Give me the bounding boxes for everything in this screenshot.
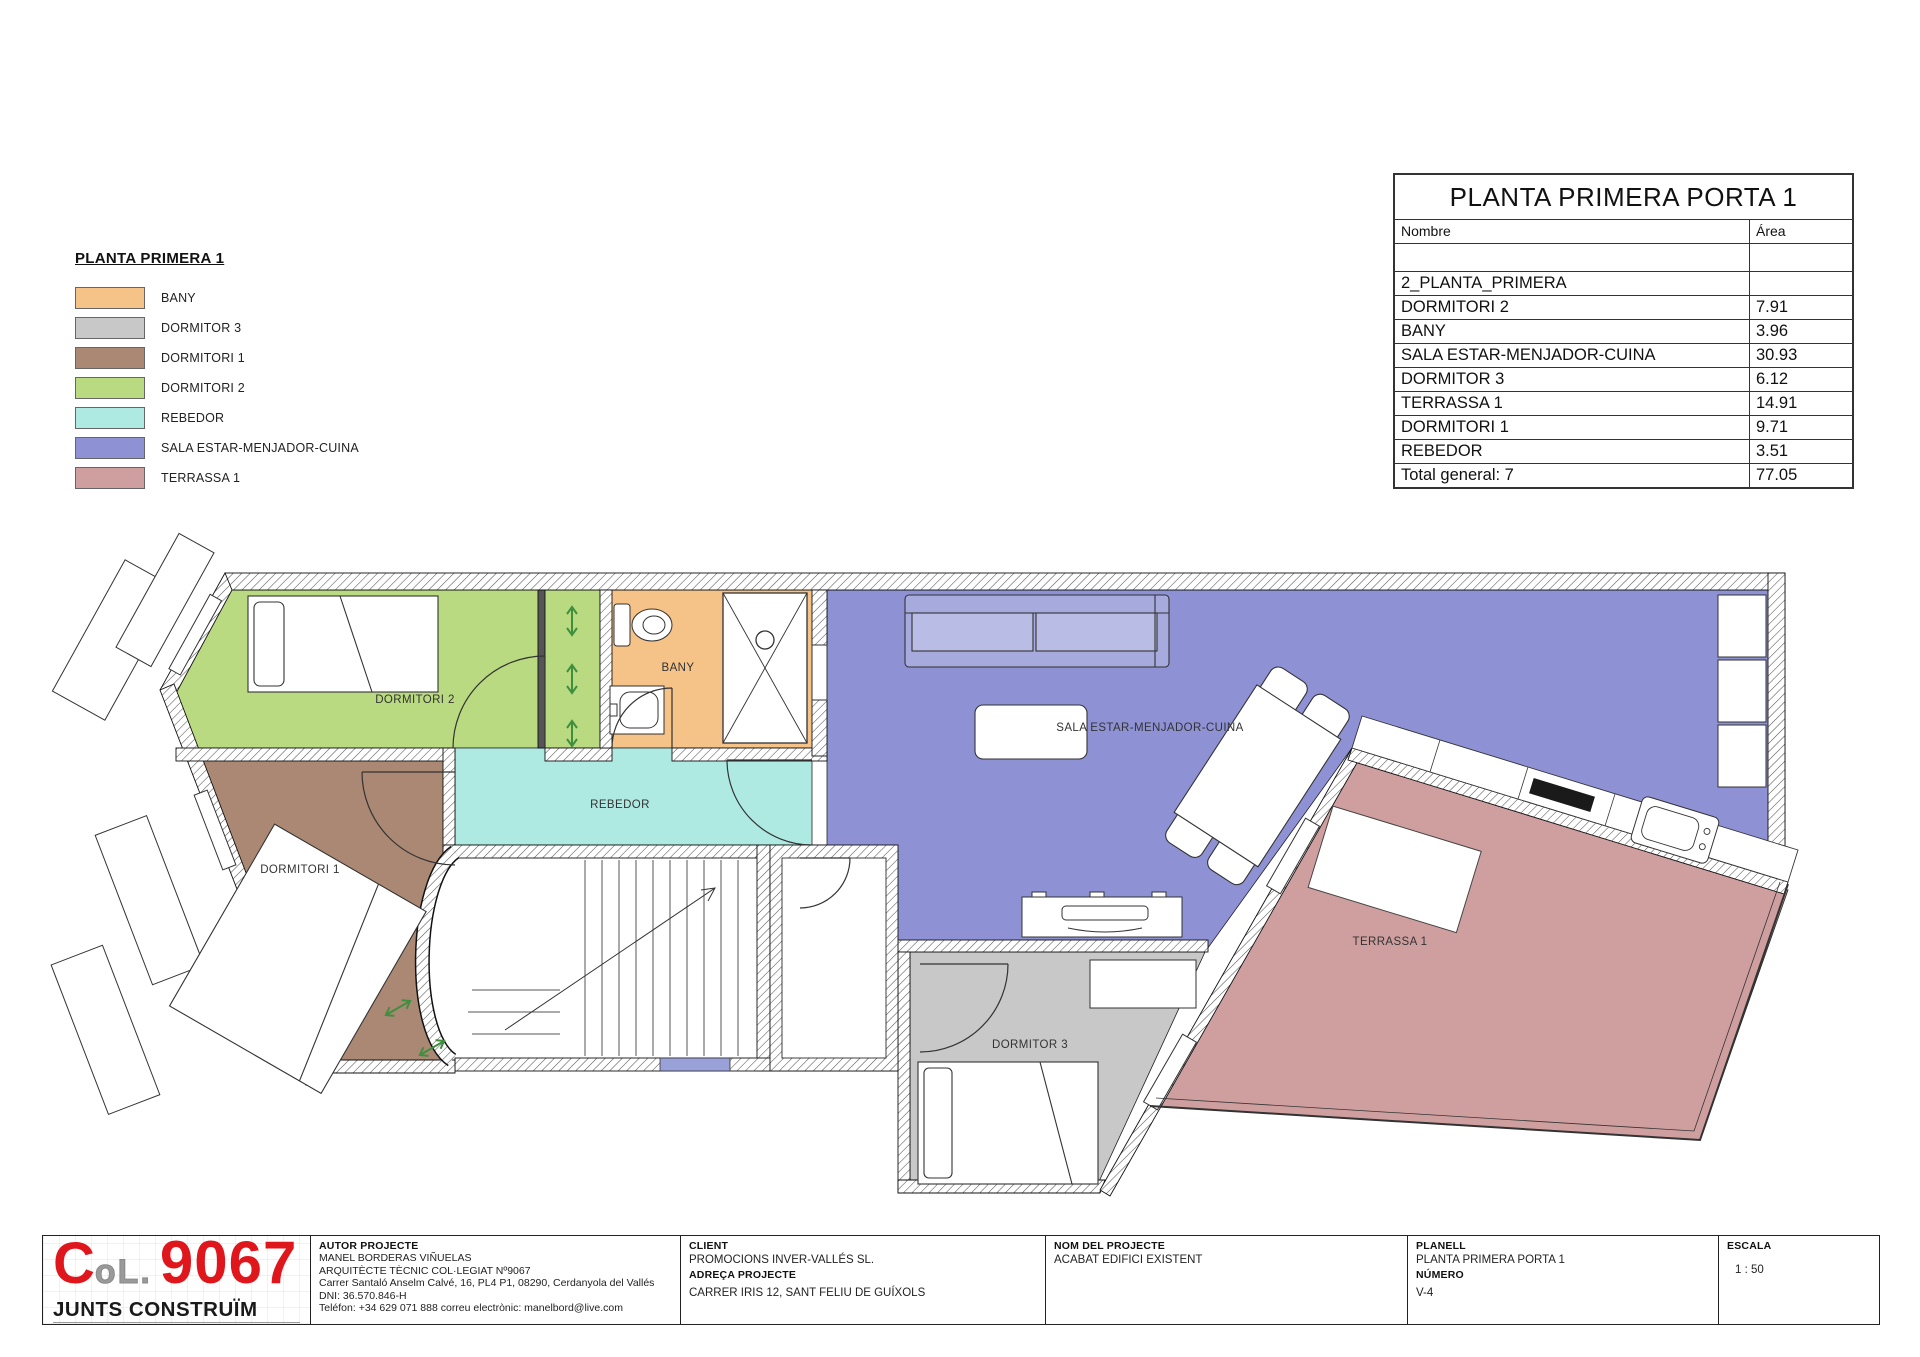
adreca-header: ADREÇA PROJECTE bbox=[689, 1269, 1037, 1281]
legend-label: DORMITORI 2 bbox=[161, 381, 245, 395]
title-block: CoL.9067 JUNTS CONSTRUÏM AUTOR PROJECTE … bbox=[42, 1235, 1880, 1325]
legend-item-rebedor: REBEDOR bbox=[75, 403, 405, 433]
titleblock-autor: AUTOR PROJECTE MANEL BORDERAS VIÑUELAS A… bbox=[311, 1236, 681, 1324]
escala-header: ESCALA bbox=[1727, 1240, 1871, 1252]
logo-letters-ol: oL. bbox=[95, 1246, 152, 1298]
legend-swatch-dormitori2 bbox=[75, 377, 145, 399]
label-dormitori1: DORMITORI 1 bbox=[260, 864, 340, 876]
stairs bbox=[468, 860, 738, 1056]
sofa bbox=[905, 595, 1169, 667]
bed-dormitor3 bbox=[918, 1062, 1098, 1184]
cell-area: 3.51 bbox=[1750, 440, 1852, 463]
label-bany: BANY bbox=[662, 662, 695, 674]
autor-dni: DNI: 36.570.846-H bbox=[319, 1290, 672, 1303]
label-dormitori2: DORMITORI 2 bbox=[375, 694, 455, 706]
numero-header: NÚMERO bbox=[1416, 1269, 1710, 1281]
projecte-header: NOM DEL PROJECTE bbox=[1054, 1240, 1399, 1252]
legend-label: REBEDOR bbox=[161, 411, 224, 425]
logo-letter-c: C bbox=[53, 1238, 95, 1290]
legend-label: DORMITOR 3 bbox=[161, 321, 241, 335]
legend-item-dormitor3: DORMITOR 3 bbox=[75, 313, 405, 343]
desk-dormitor3 bbox=[1090, 960, 1196, 1008]
label-dormitor3: DORMITOR 3 bbox=[992, 1039, 1068, 1051]
autor-titulo: ARQUITÈCTE TÈCNIC COL·LEGIAT Nº9067 bbox=[319, 1265, 672, 1278]
cell-nombre: BANY bbox=[1395, 320, 1750, 343]
stair-window bbox=[660, 1058, 730, 1071]
table-row-blank bbox=[1395, 244, 1852, 272]
cell-nombre: DORMITORI 1 bbox=[1395, 416, 1750, 439]
autor-address: Carrer Santaló Anselm Calvé, 16, PL4 P1,… bbox=[319, 1277, 672, 1290]
numero-value: V-4 bbox=[1416, 1287, 1710, 1299]
shower bbox=[723, 593, 807, 743]
cell-area: 30.93 bbox=[1750, 344, 1852, 367]
autor-contact: Teléfon: +34 629 071 888 correu electròn… bbox=[319, 1302, 672, 1315]
titleblock-escala: ESCALA 1 : 50 bbox=[1719, 1236, 1879, 1324]
legend-swatch-bany bbox=[75, 287, 145, 309]
legend: PLANTA PRIMERA 1 BANY DORMITOR 3 DORMITO… bbox=[75, 250, 405, 493]
legend-item-sala: SALA ESTAR-MENJADOR-CUINA bbox=[75, 433, 405, 463]
cell-area: 7.91 bbox=[1750, 296, 1852, 319]
stair-curved-wall bbox=[422, 852, 455, 1060]
cell-area: 9.71 bbox=[1750, 416, 1852, 439]
tv-sideboard bbox=[1022, 892, 1182, 937]
legend-swatch-dormitor3 bbox=[75, 317, 145, 339]
legend-label: BANY bbox=[161, 291, 196, 305]
stair-direction-arrow bbox=[505, 888, 715, 1030]
table-row: DORMITORI 2 7.91 bbox=[1395, 296, 1852, 320]
legend-swatch-terrassa bbox=[75, 467, 145, 489]
table-row-total: Total general: 7 77.05 bbox=[1395, 464, 1852, 487]
legend-item-bany: BANY bbox=[75, 283, 405, 313]
adreca-value: CARRER IRIS 12, SANT FELIU DE GUÍXOLS bbox=[689, 1287, 1037, 1299]
planell-name: PLANTA PRIMERA PORTA 1 bbox=[1416, 1254, 1710, 1266]
legend-label: TERRASSA 1 bbox=[161, 471, 240, 485]
area-table-header-row: Nombre Área bbox=[1395, 220, 1852, 244]
room-rebedor bbox=[455, 748, 812, 845]
logo-wordmark: CoL.9067 bbox=[53, 1237, 300, 1298]
logo: CoL.9067 JUNTS CONSTRUÏM bbox=[43, 1236, 311, 1324]
label-terrassa: TERRASSA 1 bbox=[1353, 936, 1428, 948]
legend-label: SALA ESTAR-MENJADOR-CUINA bbox=[161, 441, 359, 455]
group-label: 2_PLANTA_PRIMERA bbox=[1395, 272, 1750, 295]
legend-swatch-dormitori1 bbox=[75, 347, 145, 369]
cell-nombre: REBEDOR bbox=[1395, 440, 1750, 463]
titleblock-projecte: NOM DEL PROJECTE ACABAT EDIFICI EXISTENT bbox=[1046, 1236, 1408, 1324]
total-label: Total general: 7 bbox=[1395, 464, 1750, 487]
legend-swatch-sala bbox=[75, 437, 145, 459]
table-row: DORMITOR 3 6.12 bbox=[1395, 368, 1852, 392]
table-row: BANY 3.96 bbox=[1395, 320, 1852, 344]
planell-header: PLANELL bbox=[1416, 1240, 1710, 1252]
autor-header: AUTOR PROJECTE bbox=[319, 1240, 672, 1252]
cell-nombre: DORMITOR 3 bbox=[1395, 368, 1750, 391]
logo-number: 9067 bbox=[160, 1237, 297, 1289]
legend-title: PLANTA PRIMERA 1 bbox=[75, 250, 405, 267]
cell-area: 6.12 bbox=[1750, 368, 1852, 391]
col-header-area: Área bbox=[1750, 220, 1852, 243]
col-header-nombre: Nombre bbox=[1395, 220, 1750, 243]
table-row: SALA ESTAR-MENJADOR-CUINA 30.93 bbox=[1395, 344, 1852, 368]
label-rebedor: REBEDOR bbox=[590, 799, 650, 811]
legend-item-dormitori1: DORMITORI 1 bbox=[75, 343, 405, 373]
table-row: TERRASSA 1 14.91 bbox=[1395, 392, 1852, 416]
titleblock-planell: PLANELL PLANTA PRIMERA PORTA 1 NÚMERO V-… bbox=[1408, 1236, 1719, 1324]
table-row-group: 2_PLANTA_PRIMERA bbox=[1395, 272, 1852, 296]
cell-nombre: TERRASSA 1 bbox=[1395, 392, 1750, 415]
total-value: 77.05 bbox=[1750, 464, 1852, 487]
table-row: DORMITORI 1 9.71 bbox=[1395, 416, 1852, 440]
bathroom-sink bbox=[610, 686, 664, 734]
titleblock-client: CLIENT PROMOCIONS INVER-VALLÉS SL. ADREÇ… bbox=[681, 1236, 1046, 1324]
kitchen-cabinets bbox=[1718, 595, 1766, 787]
area-table: PLANTA PRIMERA PORTA 1 Nombre Área 2_PLA… bbox=[1393, 173, 1854, 489]
projecte-name: ACABAT EDIFICI EXISTENT bbox=[1054, 1254, 1399, 1266]
cell-nombre: SALA ESTAR-MENJADOR-CUINA bbox=[1395, 344, 1750, 367]
escala-value: 1 : 50 bbox=[1735, 1264, 1871, 1276]
cell-area: 14.91 bbox=[1750, 392, 1852, 415]
cell-area: 3.96 bbox=[1750, 320, 1852, 343]
table-row: REBEDOR 3.51 bbox=[1395, 440, 1852, 464]
area-table-title: PLANTA PRIMERA PORTA 1 bbox=[1395, 175, 1852, 220]
autor-name: MANEL BORDERAS VIÑUELAS bbox=[319, 1252, 672, 1265]
legend-item-terrassa: TERRASSA 1 bbox=[75, 463, 405, 493]
legend-label: DORMITORI 1 bbox=[161, 351, 245, 365]
label-sala: SALA ESTAR-MENJADOR-CUINA bbox=[1056, 722, 1243, 734]
elevator-room bbox=[770, 845, 898, 1071]
bed-dormitori2 bbox=[248, 596, 438, 692]
cell-nombre: DORMITORI 2 bbox=[1395, 296, 1750, 319]
client-name: PROMOCIONS INVER-VALLÉS SL. bbox=[689, 1254, 1037, 1266]
legend-swatch-rebedor bbox=[75, 407, 145, 429]
logo-tagline: JUNTS CONSTRUÏM bbox=[53, 1298, 300, 1323]
client-header: CLIENT bbox=[689, 1240, 1037, 1252]
legend-item-dormitori2: DORMITORI 2 bbox=[75, 373, 405, 403]
